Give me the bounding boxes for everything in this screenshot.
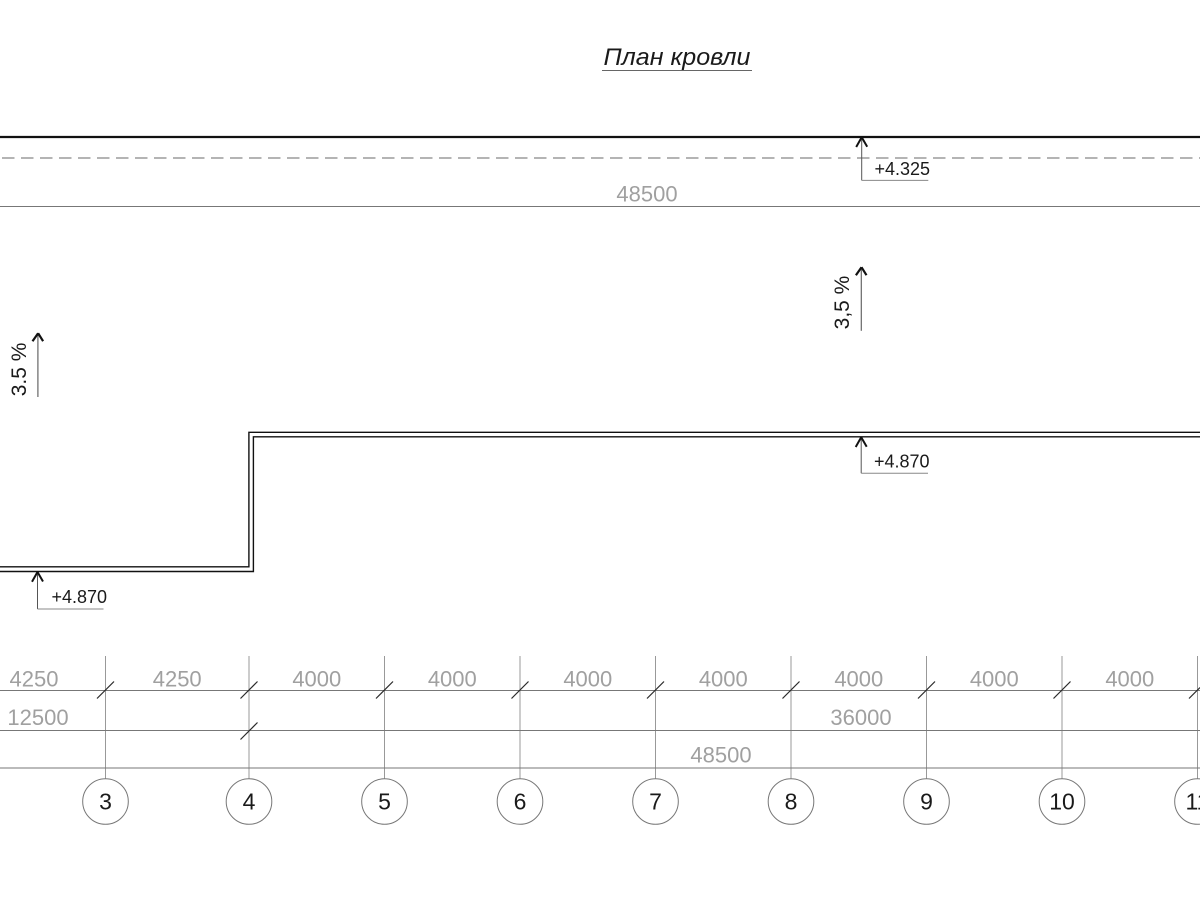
- svg-text:48500: 48500: [690, 743, 751, 768]
- svg-text:3,5 %: 3,5 %: [831, 276, 854, 330]
- svg-text:4: 4: [243, 789, 256, 815]
- svg-text:5: 5: [378, 789, 391, 815]
- svg-text:11: 11: [1186, 789, 1200, 815]
- svg-text:4000: 4000: [428, 667, 477, 692]
- svg-text:+4.870: +4.870: [52, 587, 108, 607]
- svg-text:4250: 4250: [10, 667, 59, 692]
- svg-text:4000: 4000: [1105, 667, 1154, 692]
- svg-text:+4.870: +4.870: [874, 451, 930, 471]
- svg-text:3.5 %: 3.5 %: [8, 343, 31, 397]
- svg-text:4000: 4000: [292, 667, 341, 692]
- svg-text:3: 3: [99, 789, 112, 815]
- svg-text:План кровли: План кровли: [604, 44, 751, 71]
- svg-text:4000: 4000: [563, 667, 612, 692]
- svg-text:9: 9: [920, 789, 933, 815]
- svg-text:4000: 4000: [699, 667, 748, 692]
- svg-text:4000: 4000: [970, 667, 1019, 692]
- svg-text:4000: 4000: [834, 667, 883, 692]
- svg-text:48500: 48500: [616, 182, 677, 207]
- svg-text:12500: 12500: [7, 705, 68, 730]
- svg-text:+4.325: +4.325: [875, 159, 931, 179]
- svg-text:8: 8: [785, 789, 798, 815]
- svg-text:7: 7: [649, 789, 662, 815]
- svg-text:36000: 36000: [830, 705, 891, 730]
- svg-text:4250: 4250: [153, 667, 202, 692]
- svg-text:10: 10: [1049, 789, 1075, 815]
- svg-text:6: 6: [514, 789, 527, 815]
